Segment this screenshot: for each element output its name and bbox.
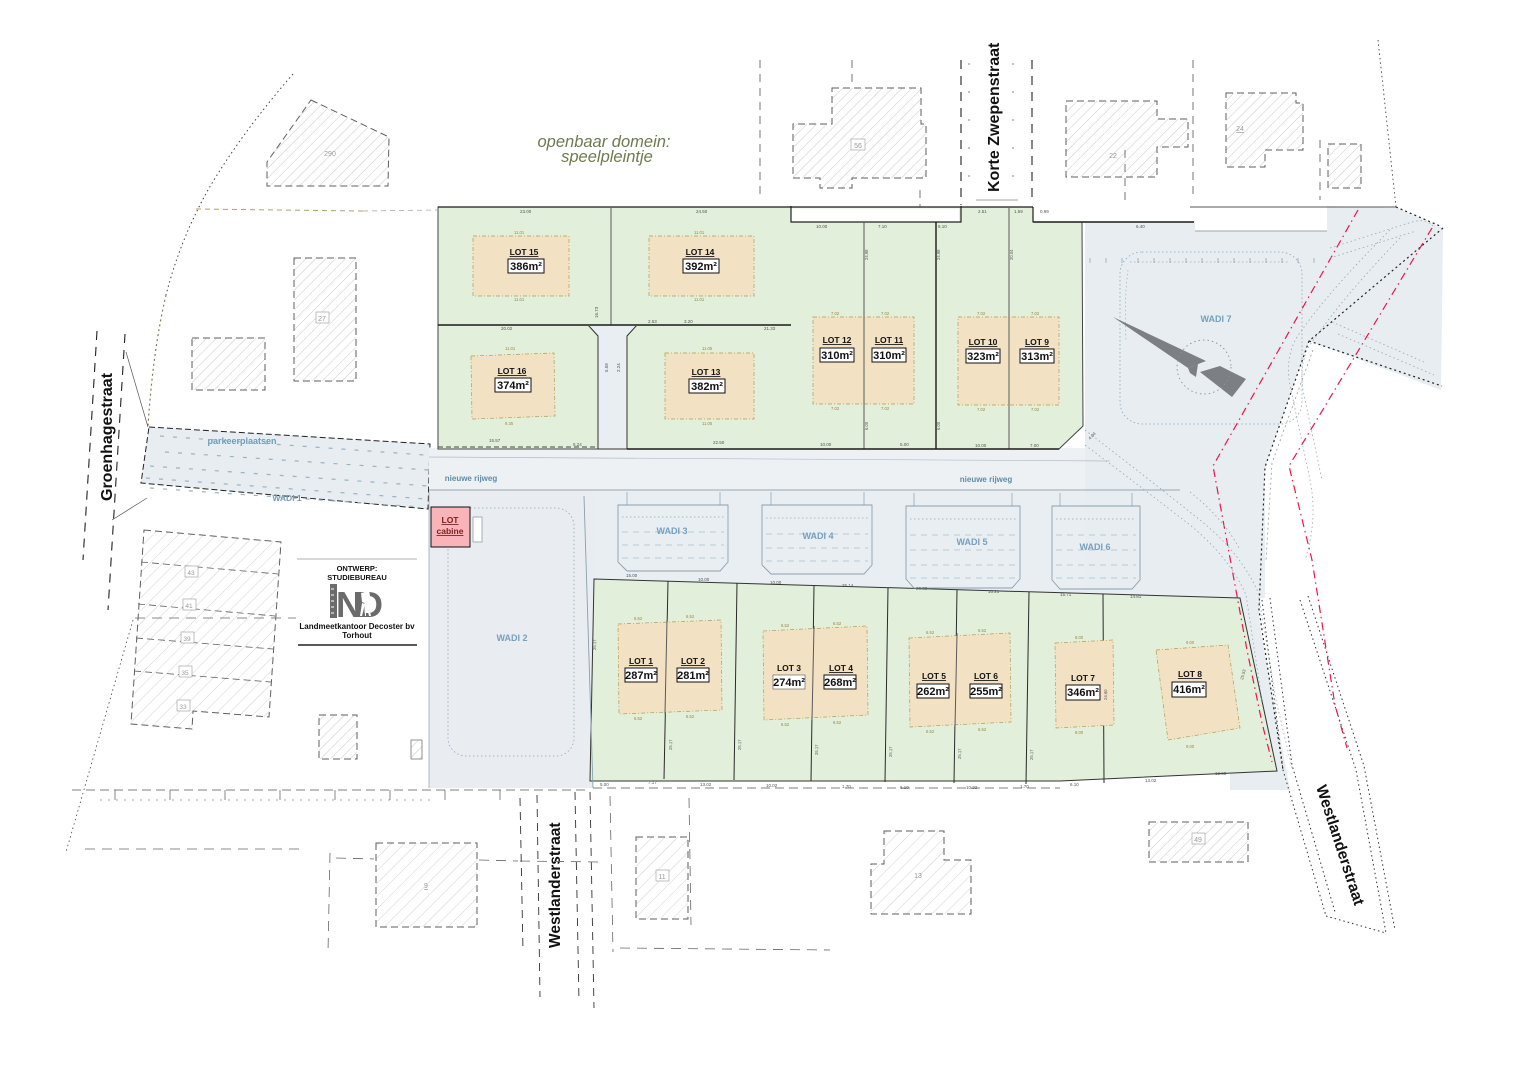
svg-text:24.98: 24.98 xyxy=(864,249,869,260)
svg-text:6.00: 6.00 xyxy=(936,421,941,430)
svg-text:0.99: 0.99 xyxy=(1040,209,1049,214)
svg-text:25.14: 25.14 xyxy=(842,583,854,588)
svg-text:16.73: 16.73 xyxy=(594,306,599,318)
svg-text:9.00: 9.00 xyxy=(1186,640,1195,645)
svg-text:27: 27 xyxy=(318,316,326,323)
svg-text:24.80: 24.80 xyxy=(1103,689,1108,700)
svg-text:WADI 7: WADI 7 xyxy=(1200,314,1231,324)
svg-text:Landmeetkantoor Decoster bv: Landmeetkantoor Decoster bv xyxy=(299,622,415,631)
svg-text:6.52: 6.52 xyxy=(978,727,987,732)
svg-text:WADI 4: WADI 4 xyxy=(802,531,833,541)
svg-text:310m²: 310m² xyxy=(873,350,905,362)
svg-text:11.01: 11.01 xyxy=(694,297,705,302)
svg-text:22.50: 22.50 xyxy=(713,440,725,445)
svg-text:7.02: 7.02 xyxy=(881,311,890,316)
svg-text:25.17: 25.17 xyxy=(668,739,673,750)
svg-text:6.52: 6.52 xyxy=(686,714,695,719)
svg-text:WADI 1: WADI 1 xyxy=(272,493,302,503)
svg-text:49: 49 xyxy=(1194,837,1202,844)
svg-text:5.24: 5.24 xyxy=(573,442,582,447)
svg-text:LOT: LOT xyxy=(442,515,460,525)
svg-text:11.05: 11.05 xyxy=(702,346,713,351)
svg-text:13.02: 13.02 xyxy=(700,782,712,787)
svg-text:LOT 11: LOT 11 xyxy=(875,335,904,345)
svg-text:6.52: 6.52 xyxy=(926,630,935,635)
svg-text:374m²: 374m² xyxy=(497,380,529,392)
svg-text:10.21: 10.21 xyxy=(988,589,1000,594)
svg-text:6.52: 6.52 xyxy=(926,729,935,734)
svg-text:6.40: 6.40 xyxy=(1136,224,1145,229)
svg-text:10.00: 10.00 xyxy=(698,577,710,582)
svg-text:Westlanderstraat: Westlanderstraat xyxy=(547,823,564,948)
svg-text:43: 43 xyxy=(187,570,195,577)
svg-text:WADI 5: WADI 5 xyxy=(956,537,987,547)
svg-text:cabine: cabine xyxy=(437,526,464,536)
svg-text:6.52: 6.52 xyxy=(781,623,790,628)
svg-text:5.00: 5.00 xyxy=(600,782,609,787)
svg-text:11.05: 11.05 xyxy=(702,421,713,426)
svg-text:416m²: 416m² xyxy=(1173,684,1205,696)
svg-text:13.02: 13.02 xyxy=(1145,778,1157,783)
svg-text:6.52: 6.52 xyxy=(833,621,842,626)
svg-text:20.04: 20.04 xyxy=(1009,249,1014,260)
svg-text:24.50: 24.50 xyxy=(696,209,708,214)
svg-text:6.52: 6.52 xyxy=(833,720,842,725)
svg-text:WADI 2: WADI 2 xyxy=(496,633,527,643)
svg-text:LOT 5: LOT 5 xyxy=(922,671,946,681)
svg-text:39: 39 xyxy=(183,636,191,643)
svg-text:10.00: 10.00 xyxy=(770,580,782,585)
svg-text:41: 41 xyxy=(185,603,193,610)
svg-text:382m²: 382m² xyxy=(691,381,723,393)
svg-text:LOT 13: LOT 13 xyxy=(692,367,721,377)
svg-text:11.01: 11.01 xyxy=(505,346,516,351)
svg-text:346m²: 346m² xyxy=(1067,687,1099,699)
svg-text:11.01: 11.01 xyxy=(514,297,525,302)
svg-text:35: 35 xyxy=(181,670,189,677)
svg-text:25.17: 25.17 xyxy=(592,639,597,650)
svg-text:STUDIEBUREAU: STUDIEBUREAU xyxy=(327,573,387,582)
svg-text:Torhout: Torhout xyxy=(342,631,372,640)
svg-text:2.53: 2.53 xyxy=(648,319,657,324)
svg-text:D: D xyxy=(357,584,383,625)
svg-text:LOT 15: LOT 15 xyxy=(510,247,539,257)
svg-text:10.02: 10.02 xyxy=(766,783,778,788)
svg-text:290: 290 xyxy=(324,151,336,158)
svg-text:12.65: 12.65 xyxy=(1215,771,1227,776)
svg-text:274m²: 274m² xyxy=(773,677,805,689)
svg-text:11: 11 xyxy=(658,874,665,881)
svg-text:6.52: 6.52 xyxy=(634,616,643,621)
svg-text:24.98: 24.98 xyxy=(936,249,941,260)
svg-text:6.52: 6.52 xyxy=(634,716,643,721)
svg-text:11.01: 11.01 xyxy=(514,230,525,235)
svg-text:25.17: 25.17 xyxy=(888,746,893,757)
svg-text:WADI 6: WADI 6 xyxy=(1079,542,1110,552)
svg-text:WADI 3: WADI 3 xyxy=(656,526,687,536)
svg-text:nieuwe rijweg: nieuwe rijweg xyxy=(445,474,498,483)
svg-text:6.52: 6.52 xyxy=(686,614,695,619)
svg-text:LOT 7: LOT 7 xyxy=(1071,673,1095,683)
svg-text:6.10: 6.10 xyxy=(938,224,947,229)
svg-text:7.02: 7.02 xyxy=(831,406,840,411)
svg-text:LOT 9: LOT 9 xyxy=(1025,337,1049,347)
svg-text:386m²: 386m² xyxy=(510,261,542,273)
svg-text:1.70: 1.70 xyxy=(1020,784,1029,789)
svg-text:310m²: 310m² xyxy=(821,350,853,362)
svg-text:7.02: 7.02 xyxy=(1031,407,1040,412)
svg-text:323m²: 323m² xyxy=(967,351,999,363)
svg-text:10.00: 10.00 xyxy=(816,224,828,229)
svg-text:15.71: 15.71 xyxy=(1060,592,1072,597)
svg-text:nieuwe rijweg: nieuwe rijweg xyxy=(960,475,1013,484)
svg-text:6.10: 6.10 xyxy=(900,785,909,790)
svg-text:22: 22 xyxy=(1109,153,1117,160)
svg-text:56: 56 xyxy=(854,143,862,150)
svg-text:24: 24 xyxy=(1236,126,1244,133)
svg-text:25.17: 25.17 xyxy=(814,744,819,755)
svg-text:7.02: 7.02 xyxy=(881,406,890,411)
svg-text:9: 9 xyxy=(424,883,428,890)
svg-text:ONTWERP:: ONTWERP: xyxy=(337,564,378,573)
svg-text:LOT 10: LOT 10 xyxy=(969,337,998,347)
svg-text:1.59: 1.59 xyxy=(1014,209,1023,214)
svg-text:15.00: 15.00 xyxy=(626,573,638,578)
svg-text:287m²: 287m² xyxy=(625,670,657,682)
svg-text:7.00: 7.00 xyxy=(1030,443,1039,448)
svg-text:33: 33 xyxy=(179,704,187,711)
svg-text:3.20: 3.20 xyxy=(684,319,693,324)
svg-text:10.00: 10.00 xyxy=(820,442,832,447)
svg-text:23.00: 23.00 xyxy=(520,209,532,214)
svg-text:6.00: 6.00 xyxy=(864,421,869,430)
svg-text:268m²: 268m² xyxy=(824,677,856,689)
svg-text:6.10: 6.10 xyxy=(1070,782,1079,787)
svg-text:13: 13 xyxy=(914,873,922,880)
svg-text:1.70: 1.70 xyxy=(842,784,851,789)
svg-text:392m²: 392m² xyxy=(685,261,717,273)
svg-text:8.00: 8.00 xyxy=(1075,730,1084,735)
svg-text:262m²: 262m² xyxy=(917,686,949,698)
svg-text:LOT 6: LOT 6 xyxy=(974,671,998,681)
svg-text:speelpleintje: speelpleintje xyxy=(561,148,653,166)
svg-text:2.24: 2.24 xyxy=(616,363,621,372)
svg-text:LOT 4: LOT 4 xyxy=(829,663,853,673)
svg-text:14.81: 14.81 xyxy=(1130,594,1142,599)
svg-text:8.00: 8.00 xyxy=(1075,635,1084,640)
svg-text:9.35: 9.35 xyxy=(505,421,514,426)
svg-text:Korte Zwepenstraat: Korte Zwepenstraat xyxy=(986,42,1003,192)
svg-text:21.33: 21.33 xyxy=(764,326,776,331)
svg-text:LOT 1: LOT 1 xyxy=(629,656,653,666)
svg-text:Groenhagestraat: Groenhagestraat xyxy=(99,372,116,501)
svg-text:25.17: 25.17 xyxy=(1029,749,1034,760)
svg-text:parkeerplaatsen: parkeerplaatsen xyxy=(207,436,276,446)
svg-text:5.58: 5.58 xyxy=(604,363,609,372)
svg-text:LOT 3: LOT 3 xyxy=(777,663,801,673)
svg-text:LOT 2: LOT 2 xyxy=(681,656,705,666)
svg-text:5.00: 5.00 xyxy=(900,442,909,447)
svg-text:7.17: 7.17 xyxy=(648,780,657,785)
svg-text:2.51: 2.51 xyxy=(978,209,987,214)
svg-text:7.02: 7.02 xyxy=(831,311,840,316)
svg-text:20.02: 20.02 xyxy=(501,326,513,331)
svg-text:20.00: 20.00 xyxy=(916,586,928,591)
svg-text:10.00: 10.00 xyxy=(975,443,987,448)
svg-text:9.00: 9.00 xyxy=(1186,744,1195,749)
svg-text:11.01: 11.01 xyxy=(694,230,705,235)
svg-text:10.22: 10.22 xyxy=(966,785,978,790)
svg-text:LOT 14: LOT 14 xyxy=(686,247,715,257)
svg-text:7.02: 7.02 xyxy=(1031,311,1040,316)
svg-text:6.52: 6.52 xyxy=(978,628,987,633)
svg-text:15.57: 15.57 xyxy=(489,438,501,443)
svg-text:281m²: 281m² xyxy=(677,670,709,682)
svg-text:6.52: 6.52 xyxy=(781,722,790,727)
svg-text:7.10: 7.10 xyxy=(878,224,887,229)
svg-text:25.17: 25.17 xyxy=(737,739,742,750)
svg-text:313m²: 313m² xyxy=(1021,351,1053,363)
svg-text:LOT 12: LOT 12 xyxy=(823,335,852,345)
svg-text:255m²: 255m² xyxy=(970,686,1002,698)
svg-text:25.17: 25.17 xyxy=(957,748,962,759)
svg-text:LOT 16: LOT 16 xyxy=(498,366,527,376)
svg-text:LOT 8: LOT 8 xyxy=(1178,669,1202,679)
svg-text:7.02: 7.02 xyxy=(977,311,986,316)
svg-text:7.02: 7.02 xyxy=(977,407,986,412)
